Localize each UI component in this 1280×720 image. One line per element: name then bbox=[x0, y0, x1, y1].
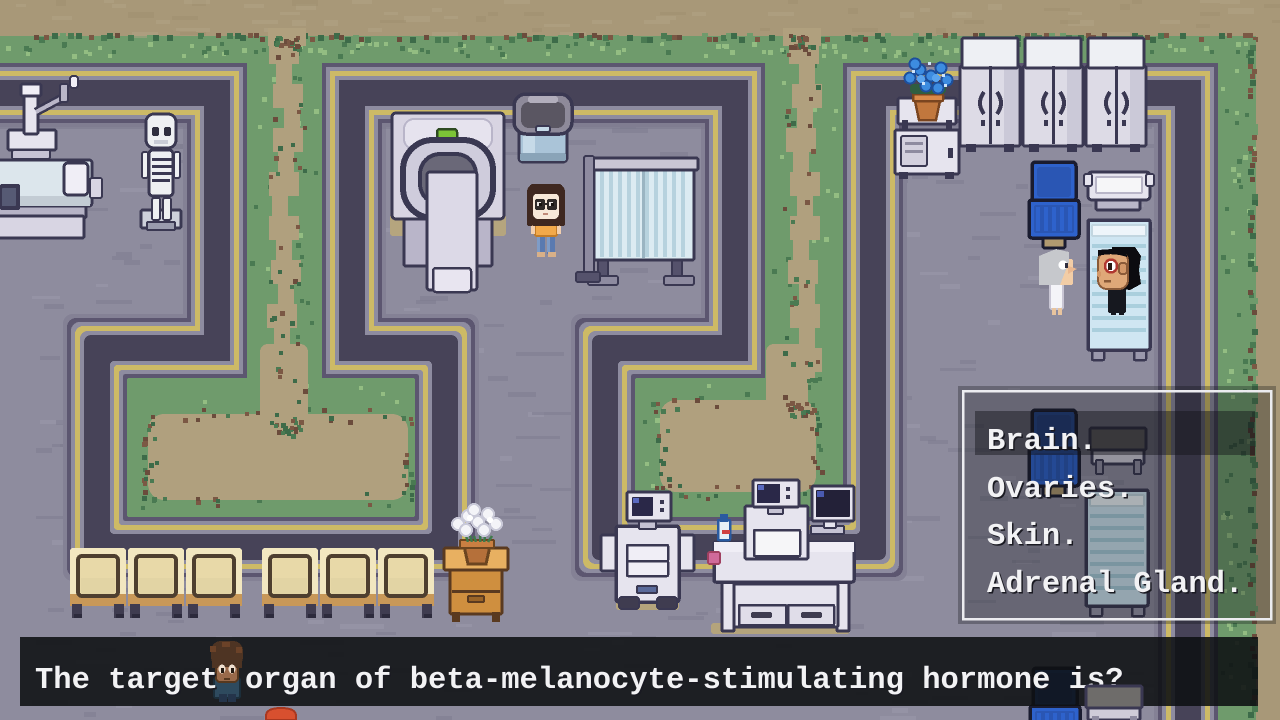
svg-text:The target: The target bbox=[35, 664, 218, 698]
svg-text:Brain.: Brain. bbox=[987, 425, 1097, 459]
svg-text:Adrenal Gland.: Adrenal Gland. bbox=[987, 568, 1243, 602]
svg-text:Ovaries.: Ovaries. bbox=[987, 473, 1133, 507]
svg-text:Skin.: Skin. bbox=[987, 520, 1079, 554]
svg-text:organ of beta-melanocyte-stimu: organ of beta-melanocyte-stimulating hor… bbox=[245, 664, 1124, 698]
